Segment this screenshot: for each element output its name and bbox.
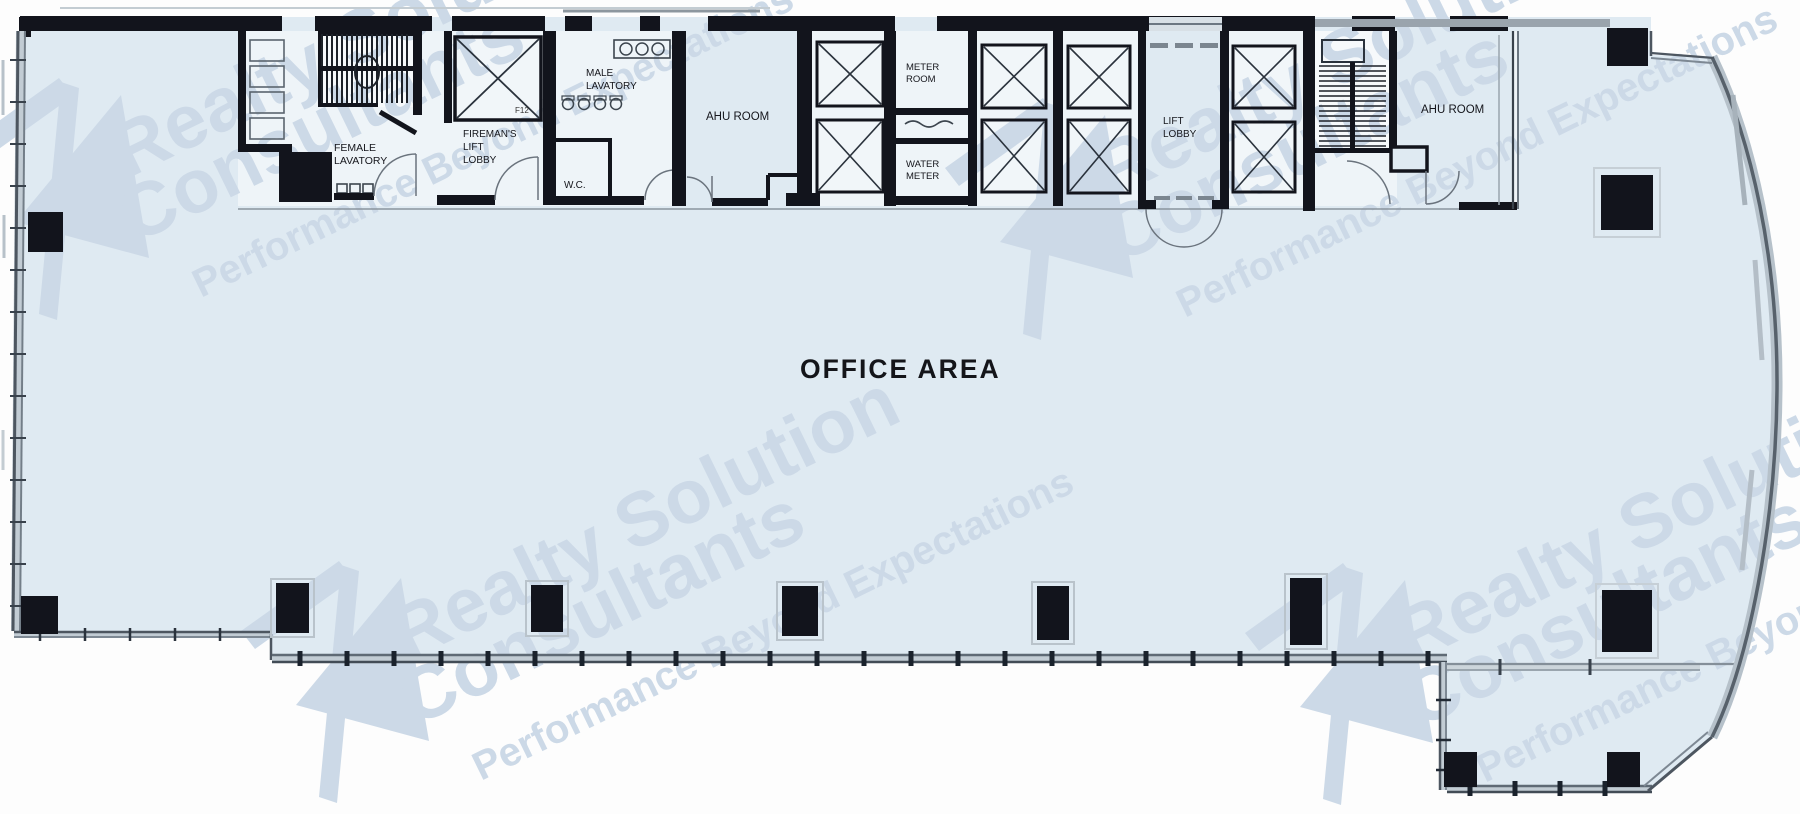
svg-text:MALE: MALE	[586, 68, 614, 79]
svg-text:LAVATORY: LAVATORY	[586, 81, 637, 92]
svg-text:AHU ROOM: AHU ROOM	[706, 111, 769, 123]
svg-text:LIFT: LIFT	[463, 142, 484, 153]
svg-text:ROOM: ROOM	[906, 74, 936, 85]
svg-text:LOBBY: LOBBY	[1163, 129, 1197, 140]
svg-text:FEMALE: FEMALE	[334, 142, 376, 154]
svg-text:LAVATORY: LAVATORY	[334, 155, 387, 167]
svg-text:AHU ROOM: AHU ROOM	[1421, 104, 1484, 116]
svg-text:LOBBY: LOBBY	[463, 155, 497, 166]
svg-text:FIREMAN'S: FIREMAN'S	[463, 129, 517, 140]
svg-text:W.C.: W.C.	[564, 180, 586, 191]
svg-text:METER: METER	[906, 171, 939, 182]
svg-text:METER: METER	[906, 62, 939, 73]
svg-text:F12: F12	[515, 106, 529, 115]
svg-text:LIFT: LIFT	[1163, 116, 1184, 127]
svg-text:OFFICE AREA: OFFICE AREA	[800, 354, 1001, 384]
svg-text:WATER: WATER	[906, 159, 939, 170]
